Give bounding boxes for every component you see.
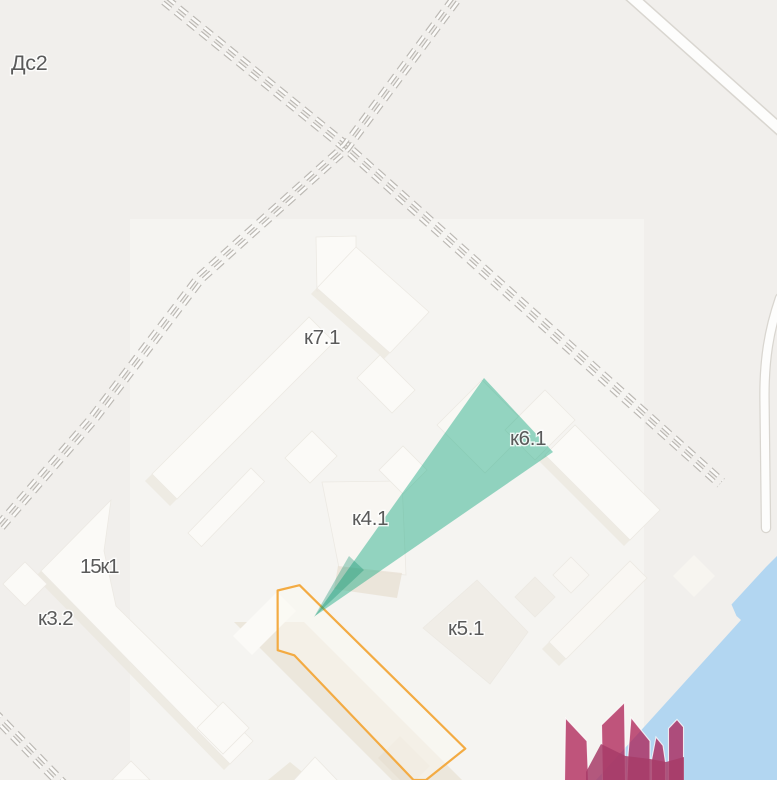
svg-text:к5.1: к5.1: [448, 617, 484, 640]
svg-text:к4.1: к4.1: [352, 507, 388, 530]
svg-text:Дс2: Дс2: [11, 51, 47, 75]
svg-text:к7.1: к7.1: [304, 326, 340, 349]
svg-text:к3.2: к3.2: [38, 607, 73, 630]
svg-text:к6.1: к6.1: [510, 427, 546, 450]
svg-text:15к1: 15к1: [80, 555, 119, 578]
